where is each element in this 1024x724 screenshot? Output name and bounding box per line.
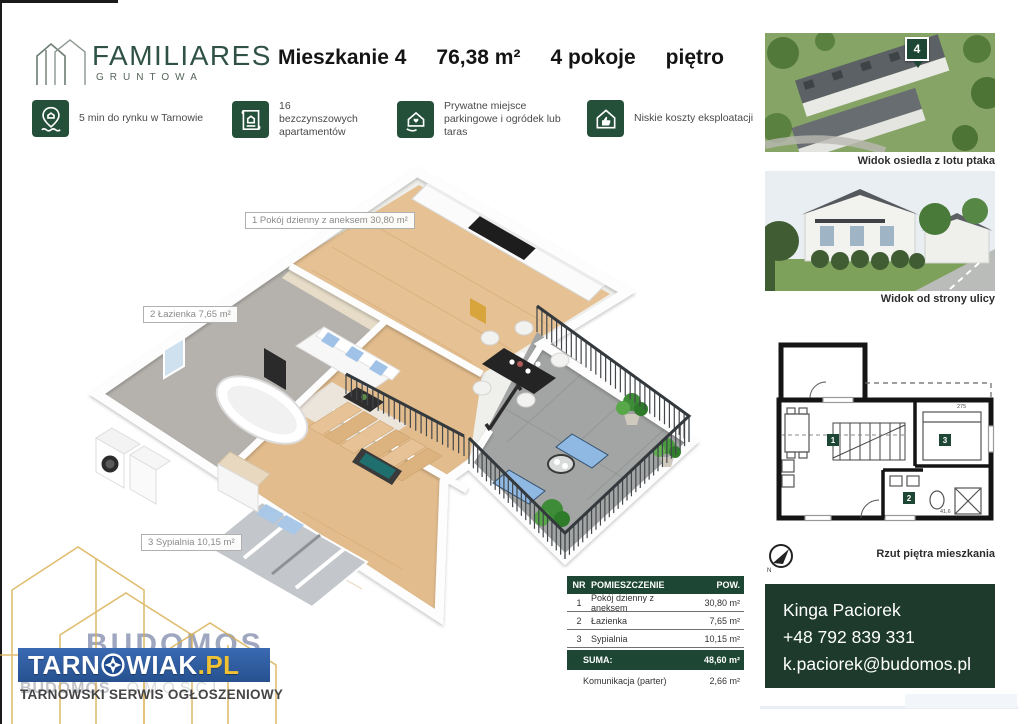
rooms-summary-table: NR POMIESZCZENIE POW. 1 Pokój dzienny z … bbox=[567, 576, 744, 690]
suma-label: SUMA: bbox=[567, 655, 688, 665]
col-area: POW. bbox=[688, 580, 744, 590]
blueprint-house-icon bbox=[232, 101, 269, 138]
table-header-row: NR POMIESZCZENIE POW. bbox=[567, 576, 744, 594]
feature-apartments-text: 16 bezczynszowych apartamentów bbox=[279, 100, 371, 139]
photo-aerial-view: 4 bbox=[765, 33, 995, 152]
building-marker: 4 bbox=[905, 37, 929, 61]
svg-text:N: N bbox=[767, 568, 771, 573]
col-room: POMIESZCZENIE bbox=[591, 580, 688, 590]
brand-name: FAMILIARES bbox=[92, 40, 272, 72]
row2-name: Łazienka bbox=[591, 616, 688, 626]
photo-street-caption: Widok od strony ulicy bbox=[765, 293, 995, 305]
row3-area: 10,15 m² bbox=[688, 634, 744, 644]
north-compass-icon: N bbox=[766, 543, 796, 573]
apartment-title: Mieszkanie 4 76,38 m² 4 pokoje piętro bbox=[278, 46, 724, 70]
row1-area: 30,80 m² bbox=[688, 598, 744, 608]
house-heart-hand-icon bbox=[397, 101, 434, 138]
table-suma-row: SUMA: 48,60 m² bbox=[567, 650, 744, 670]
table-extra-row: Komunikacja (parter) 2,66 m² bbox=[567, 672, 744, 690]
brand-subtitle: GRUNTOWA bbox=[96, 72, 203, 83]
plan2d-dim-416: 41,6 bbox=[940, 509, 951, 515]
feature-apartments: 16 bezczynszowych apartamentów bbox=[232, 100, 371, 139]
apartment-area: 76,38 m² bbox=[436, 46, 520, 70]
apartment-name: Mieszkanie 4 bbox=[278, 46, 406, 70]
balcony-table bbox=[548, 455, 574, 473]
apartment-rooms: 4 pokoje bbox=[550, 46, 635, 70]
house-thumbs-up-icon bbox=[587, 100, 624, 137]
row3-nr: 3 bbox=[567, 634, 591, 644]
tarnowiak-tagline: TARNOWSKI SERWIS OGŁOSZENIOWY bbox=[20, 687, 283, 702]
room-label-bedroom: 3 Sypialnia 10,15 m² bbox=[141, 534, 242, 551]
photo-aerial-caption: Widok osiedla z lotu ptaka bbox=[765, 155, 995, 167]
table-row: 2 Łazienka 7,65 m² bbox=[567, 612, 744, 630]
suma-value: 48,60 m² bbox=[688, 655, 744, 665]
plan2d-room-3: 3 bbox=[943, 436, 948, 445]
feature-costs-text: Niskie koszty eksploatacji bbox=[634, 112, 753, 125]
top-edge-strip bbox=[0, 0, 118, 3]
apartment-floor: piętro bbox=[666, 46, 724, 70]
plan2d-room-2: 2 bbox=[907, 494, 912, 503]
row2-nr: 2 bbox=[567, 616, 591, 626]
col-nr: NR bbox=[567, 580, 591, 590]
row3-name: Sypialnia bbox=[591, 634, 688, 644]
agent-name: Kinga Paciorek bbox=[783, 597, 995, 624]
plan2d-room-1: 1 bbox=[831, 436, 836, 445]
flyer-page: FAMILIARES GRUNTOWA Mieszkanie 4 76,38 m… bbox=[0, 0, 1024, 724]
photo-street-view bbox=[765, 171, 995, 291]
extra-name: Komunikacja (parter) bbox=[567, 676, 688, 686]
feature-costs: Niskie koszty eksploatacji bbox=[587, 100, 753, 137]
watermark-artifact bbox=[905, 694, 1017, 708]
floorplan-2d: 1 2 3 275 41,6 bbox=[765, 338, 995, 543]
feature-parking: Prywatne miejsce parkingowe i ogródek lu… bbox=[397, 100, 580, 139]
logo-tld: .PL bbox=[198, 650, 240, 681]
room-label-bathroom: 2 Łazienka 7,65 m² bbox=[143, 306, 238, 323]
extra-value: 2,66 m² bbox=[688, 676, 744, 686]
row2-area: 7,65 m² bbox=[688, 616, 744, 626]
feature-location: 5 min do rynku w Tarnowie bbox=[32, 100, 203, 137]
logo-text-pre: TARN bbox=[28, 650, 100, 681]
left-edge-strip bbox=[0, 0, 2, 724]
feature-parking-text: Prywatne miejsce parkingowe i ogródek lu… bbox=[444, 100, 580, 139]
feature-location-text: 5 min do rynku w Tarnowie bbox=[79, 112, 203, 125]
room-label-living: 1 Pokój dzienny z aneksem 30,80 m² bbox=[245, 212, 415, 229]
map-pin-house-icon bbox=[32, 100, 69, 137]
row1-name: Pokój dzienny z aneksem bbox=[591, 593, 688, 613]
row1-nr: 1 bbox=[567, 598, 591, 608]
bathroom-cabinet bbox=[130, 446, 170, 504]
agent-email: k.paciorek@budomos.pl bbox=[783, 651, 995, 678]
agent-phone: +48 792 839 331 bbox=[783, 624, 995, 651]
contact-card: Kinga Paciorek +48 792 839 331 k.paciore… bbox=[765, 584, 995, 688]
tarnowiak-logo-bar: TARN WIAK .PL bbox=[18, 648, 270, 682]
floorplan-2d-caption: Rzut piętra mieszkania bbox=[850, 548, 995, 560]
table-row: 1 Pokój dzienny z aneksem 30,80 m² bbox=[567, 594, 744, 612]
logo-text-post: WIAK bbox=[126, 650, 197, 681]
compass-star-icon bbox=[101, 653, 125, 677]
brand-house-logo-icon bbox=[33, 36, 89, 86]
table-row: 3 Sypialnia 10,15 m² bbox=[567, 630, 744, 648]
plan2d-dim-275: 275 bbox=[957, 404, 966, 410]
